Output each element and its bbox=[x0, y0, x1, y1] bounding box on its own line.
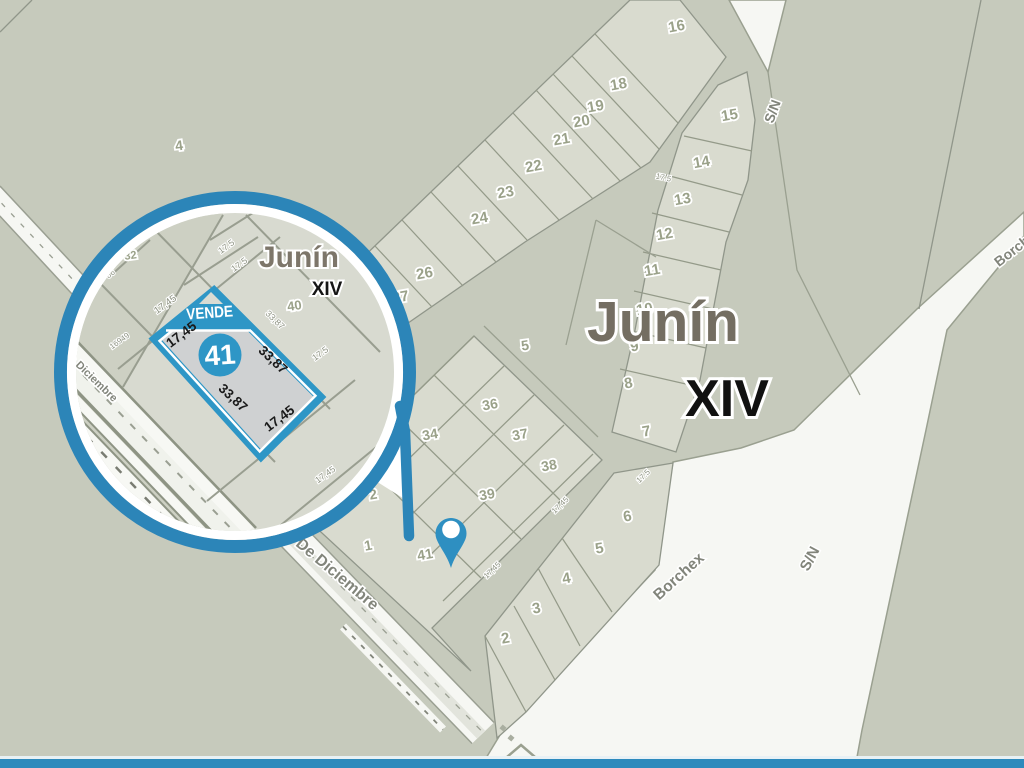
svg-text:13: 13 bbox=[673, 190, 692, 210]
svg-text:XIV: XIV bbox=[312, 279, 343, 300]
svg-text:Junín: Junín bbox=[259, 241, 339, 274]
svg-text:Junín: Junín bbox=[587, 290, 739, 354]
svg-text:16: 16 bbox=[667, 17, 686, 37]
svg-text:21: 21 bbox=[552, 130, 571, 150]
svg-text:41: 41 bbox=[416, 545, 434, 563]
svg-text:22: 22 bbox=[524, 157, 543, 177]
svg-text:38: 38 bbox=[540, 456, 558, 474]
svg-text:40: 40 bbox=[286, 297, 302, 314]
svg-text:20: 20 bbox=[572, 112, 591, 132]
svg-text:18: 18 bbox=[609, 75, 628, 95]
svg-text:39: 39 bbox=[478, 485, 496, 503]
svg-text:36: 36 bbox=[481, 395, 499, 413]
svg-text:19: 19 bbox=[586, 97, 605, 117]
svg-text:37: 37 bbox=[511, 425, 529, 443]
svg-text:VENDE: VENDE bbox=[186, 303, 234, 323]
svg-text:34: 34 bbox=[421, 425, 439, 443]
svg-text:23: 23 bbox=[496, 183, 515, 203]
svg-text:41: 41 bbox=[203, 338, 236, 371]
svg-text:15: 15 bbox=[720, 106, 739, 126]
svg-text:XIV: XIV bbox=[685, 370, 769, 428]
svg-text:12: 12 bbox=[655, 225, 674, 245]
svg-text:11: 11 bbox=[643, 261, 662, 280]
svg-text:26: 26 bbox=[415, 264, 434, 284]
